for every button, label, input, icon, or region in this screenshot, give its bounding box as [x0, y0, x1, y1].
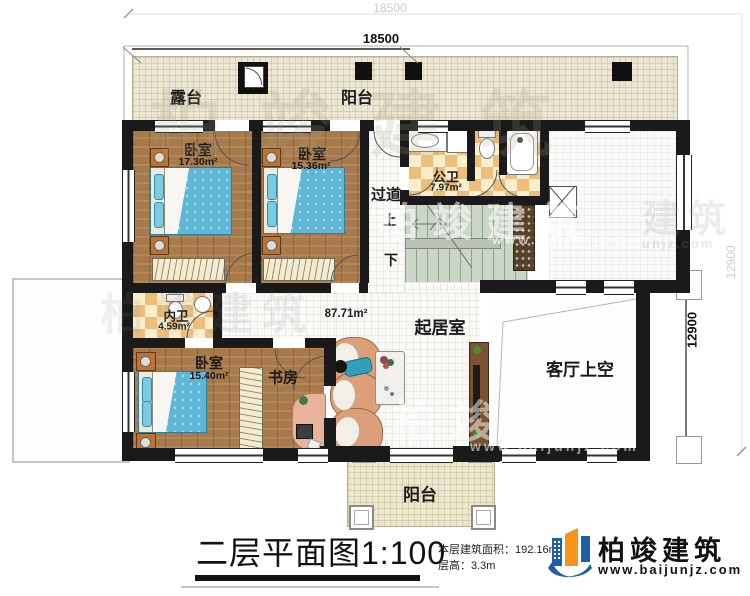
plant-icon — [299, 396, 308, 405]
window — [122, 372, 135, 432]
room-label-study: 书房 — [268, 367, 298, 388]
door-opening — [400, 167, 409, 190]
wall — [540, 131, 549, 205]
plant-icon — [473, 430, 481, 438]
stair-balustrade — [513, 205, 535, 271]
window — [502, 448, 536, 463]
stair-handrail — [405, 238, 501, 249]
window — [676, 155, 692, 230]
flower-vase-icon — [383, 363, 389, 369]
room-label-balcony-top: 阳台 — [341, 84, 373, 108]
balcony-column — [471, 505, 496, 530]
chimney-flue — [244, 66, 264, 88]
washing-machine — [447, 129, 469, 153]
dim-top-outer: 18500 — [373, 1, 406, 15]
window — [263, 120, 311, 133]
pillow — [154, 202, 164, 228]
wall — [499, 131, 507, 175]
wall — [320, 446, 390, 462]
wall-pier — [676, 436, 702, 464]
window — [122, 170, 135, 242]
pillow — [154, 174, 164, 200]
window — [585, 120, 630, 133]
door-opening — [330, 120, 360, 131]
drain-icon — [517, 137, 523, 143]
window — [298, 448, 328, 463]
room-area-public-bath: 7.97m² — [430, 183, 462, 194]
lower-roof-outline — [12, 278, 130, 463]
room-area-bedroom3: 15.40m² — [189, 370, 228, 382]
plant-icon — [473, 346, 481, 354]
door-opening — [226, 283, 256, 293]
brand-website: www.baijunjz.com — [598, 562, 742, 577]
drawing-title: 二层平面图1:100 — [196, 528, 446, 574]
logo-tower-blue — [552, 538, 562, 566]
window — [155, 120, 203, 133]
nightstand — [262, 148, 281, 167]
door-opening — [374, 120, 400, 131]
wall — [213, 338, 273, 348]
window — [175, 448, 263, 463]
window — [556, 280, 586, 295]
bed-sheet — [152, 372, 188, 432]
deck-column — [612, 62, 632, 81]
bed-sheet — [164, 168, 200, 234]
wall — [467, 131, 475, 181]
stair-landing-strip — [405, 282, 480, 293]
room-label-living: 起居室 — [415, 314, 466, 339]
floor-plan-second-floor: 18500 18500 12900 12900 — [0, 0, 750, 596]
wall — [122, 338, 185, 348]
wall — [400, 131, 409, 167]
door-opening — [273, 338, 305, 348]
dim-right-outer: 12900 — [724, 245, 738, 278]
wall — [252, 131, 261, 283]
room-label-balcony-bottom: 阳台 — [403, 481, 437, 506]
toilet-bowl — [479, 138, 495, 159]
logo-tower-blue2 — [581, 536, 590, 562]
room-area-private-bath: 4.59m² — [158, 322, 190, 333]
logo-tower-orange — [565, 528, 578, 566]
room-area-bedroom2: 15.36m² — [291, 160, 330, 172]
sink-basin — [194, 296, 211, 313]
wall — [305, 338, 336, 348]
tv-icon — [473, 365, 480, 420]
bed — [263, 167, 345, 234]
table-item — [390, 392, 394, 396]
pillow — [142, 377, 152, 403]
wall — [360, 131, 369, 283]
sliding-door — [390, 448, 453, 463]
pillow — [142, 401, 152, 427]
vestibule-floor — [222, 293, 336, 338]
brand-logo — [546, 526, 594, 580]
room-area-bedroom1: 17.30m² — [178, 156, 217, 168]
pillow — [267, 201, 277, 227]
wall — [400, 196, 549, 205]
window — [587, 448, 617, 463]
wall — [453, 446, 500, 462]
wardrobe — [239, 367, 263, 451]
dim-right-line — [650, 284, 692, 454]
table-item — [384, 386, 389, 391]
wall — [213, 293, 222, 338]
nightstand — [262, 236, 281, 255]
room-area-living: 87.71m² — [325, 308, 368, 320]
wall — [324, 348, 336, 386]
dim-top-inner: 18500 — [363, 31, 399, 46]
wardrobe — [152, 258, 225, 281]
stairs-up-label: 上 — [383, 210, 397, 230]
window — [418, 120, 448, 133]
wall — [636, 293, 650, 459]
door-opening — [185, 338, 213, 348]
bed-sheet — [277, 168, 313, 233]
brand-logo-icon — [546, 526, 594, 580]
balcony-column — [349, 505, 374, 530]
stairs-down-label: 下 — [384, 250, 398, 270]
deck-column — [405, 62, 422, 80]
room-label-corridor: 过道 — [371, 184, 401, 205]
door-opening — [331, 283, 359, 293]
deck-column — [355, 62, 372, 80]
title-underline — [195, 575, 420, 581]
room-label-living-void: 客厅上空 — [546, 356, 614, 381]
sink-basin — [411, 133, 439, 148]
title-underline-thin — [181, 586, 439, 588]
nightstand — [150, 148, 169, 167]
exhaust-fan-icon — [549, 186, 577, 218]
nightstand — [150, 236, 169, 255]
floor-area-text: 本层建筑面积：192.16m² — [438, 541, 561, 557]
door-opening — [215, 120, 249, 131]
room-label-terrace: 露台 — [170, 84, 202, 108]
computer-monitor-icon — [296, 424, 313, 439]
window — [604, 280, 634, 295]
bed — [150, 167, 232, 235]
floor-height-text: 层高：3.3m — [438, 557, 495, 573]
dim-right-inner: 12900 — [685, 312, 700, 348]
wardrobe — [263, 258, 335, 281]
pillow — [267, 174, 277, 200]
nightstand — [136, 352, 156, 371]
